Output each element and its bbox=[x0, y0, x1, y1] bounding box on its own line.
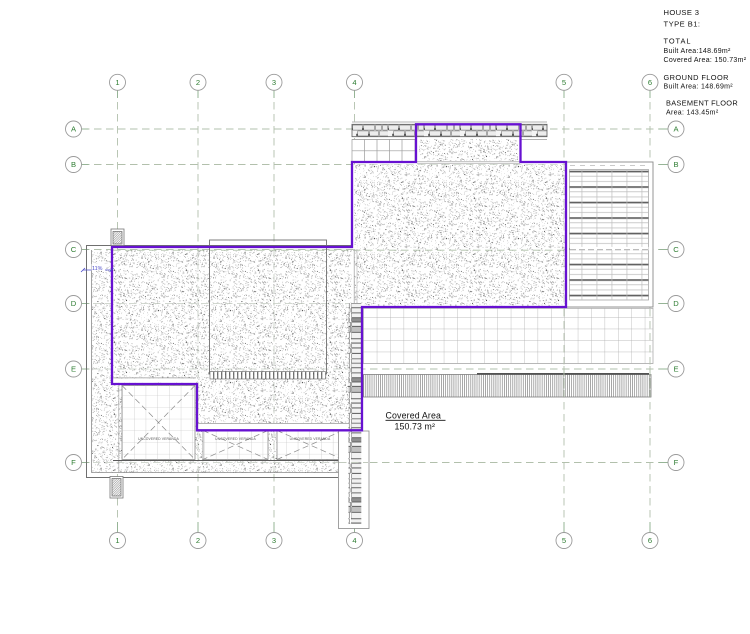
svg-text:E: E bbox=[673, 365, 678, 374]
svg-text:3: 3 bbox=[272, 78, 276, 87]
svg-text:Area: 143.45m²: Area: 143.45m² bbox=[666, 109, 719, 116]
svg-text:2: 2 bbox=[196, 78, 200, 87]
svg-text:TYPE B1:: TYPE B1: bbox=[664, 20, 701, 29]
svg-text:F: F bbox=[71, 458, 76, 467]
svg-text:6: 6 bbox=[648, 536, 652, 545]
svg-text:UNCOVERED VERANDA: UNCOVERED VERANDA bbox=[215, 437, 256, 441]
svg-text:5: 5 bbox=[562, 78, 566, 87]
svg-text:5: 5 bbox=[562, 536, 566, 545]
svg-text:C: C bbox=[673, 245, 679, 254]
svg-text:1: 1 bbox=[115, 536, 119, 545]
svg-text:150.73 m²: 150.73 m² bbox=[395, 422, 436, 432]
svg-text:B: B bbox=[673, 160, 678, 169]
svg-text:D: D bbox=[673, 299, 679, 308]
svg-text:1: 1 bbox=[115, 78, 119, 87]
svg-text:UNCOVERED VERANDA: UNCOVERED VERANDA bbox=[290, 437, 331, 441]
svg-text:6: 6 bbox=[648, 78, 652, 87]
svg-text:F: F bbox=[674, 458, 679, 467]
svg-text:C: C bbox=[71, 245, 77, 254]
svg-text:Built Area: 148.69m²: Built Area: 148.69m² bbox=[664, 84, 734, 91]
svg-text:4: 4 bbox=[352, 536, 356, 545]
svg-text:4: 4 bbox=[352, 78, 356, 87]
svg-text:BASEMENT FLOOR: BASEMENT FLOOR bbox=[666, 99, 738, 108]
svg-text:11%: 11% bbox=[92, 266, 103, 272]
svg-text:D: D bbox=[71, 299, 77, 308]
svg-text:3: 3 bbox=[272, 536, 276, 545]
svg-text:UNCOVERED VERANDA: UNCOVERED VERANDA bbox=[138, 437, 179, 441]
svg-text:HOUSE 3: HOUSE 3 bbox=[664, 8, 700, 17]
svg-text:Built Area:148.69m²: Built Area:148.69m² bbox=[664, 48, 732, 55]
svg-text:E: E bbox=[71, 365, 76, 374]
svg-text:Covered Area: Covered Area bbox=[386, 410, 442, 420]
svg-text:Covered Area: 150.73m²: Covered Area: 150.73m² bbox=[664, 57, 747, 64]
svg-text:2: 2 bbox=[196, 536, 200, 545]
svg-text:GROUND FLOOR: GROUND FLOOR bbox=[664, 73, 729, 82]
svg-text:B: B bbox=[71, 160, 76, 169]
svg-text:TOTAL: TOTAL bbox=[664, 37, 692, 46]
